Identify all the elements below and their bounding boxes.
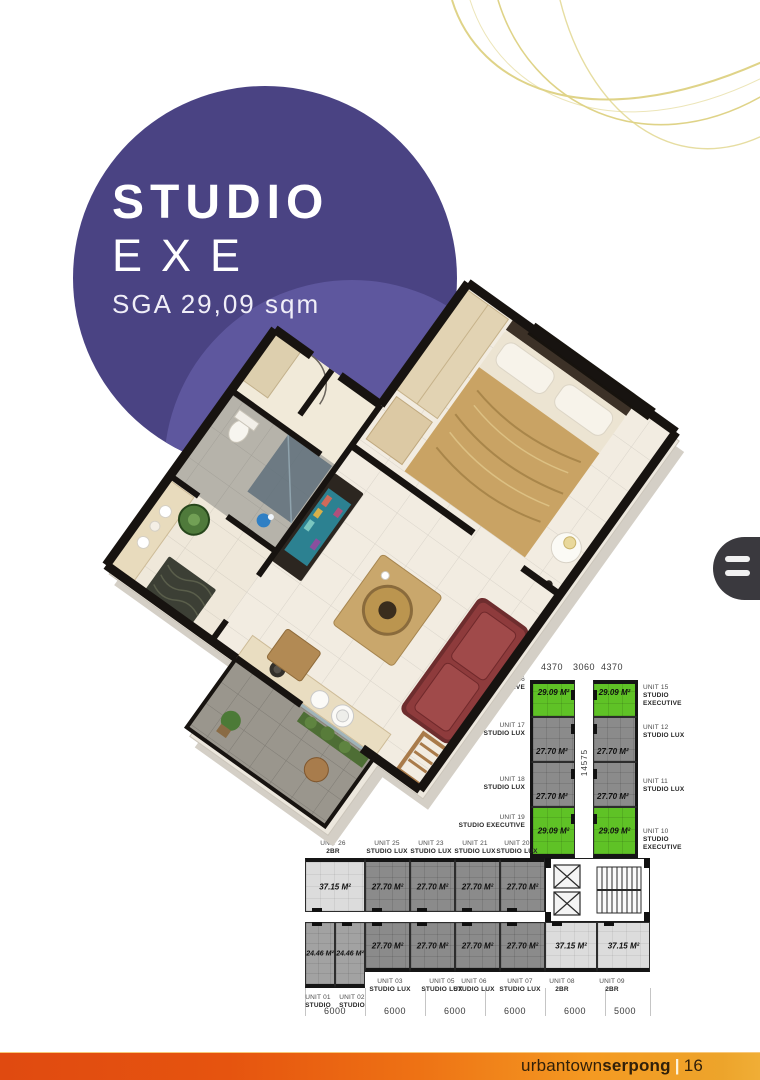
area-label: SGA 29,09 sqm xyxy=(112,287,329,321)
unit-cell: 29.09 M² xyxy=(593,680,638,717)
wardrobe xyxy=(397,290,509,418)
bathroom xyxy=(170,390,337,551)
menu-handle-icon xyxy=(725,556,750,562)
unit-cell: 29.09 M² xyxy=(530,680,575,717)
unit-area: 29.09 M² xyxy=(538,688,570,697)
dimension-label: 6000 xyxy=(564,1006,586,1016)
unit-label: UNIT 20STUDIO LUX xyxy=(491,840,543,856)
toilet xyxy=(225,416,254,446)
side-table xyxy=(545,527,587,569)
page: STUDIO EXE SGA 29,09 sqm 29.09 M²27.70 xyxy=(0,0,760,1080)
unit-area: 29.09 M² xyxy=(599,688,631,697)
unit-area: 27.70 M² xyxy=(417,941,449,950)
unit-area: 27.70 M² xyxy=(536,747,568,756)
unit-cell: 27.70 M² xyxy=(365,858,410,912)
round-wall-art xyxy=(173,499,215,541)
dimension-label: 14575 xyxy=(580,749,589,776)
dimension-label: 4370 xyxy=(541,662,563,672)
unit-cell: 27.70 M² xyxy=(530,762,575,807)
unit-label: UNIT 06STUDIO LUX xyxy=(448,978,500,994)
footer-bar: urbantownserpong|16 xyxy=(0,1052,760,1080)
page-number: 16 xyxy=(684,1056,703,1075)
unit-cell: 27.70 M² xyxy=(365,922,410,972)
unit-cell: 27.70 M² xyxy=(593,717,638,762)
dimension-tick xyxy=(425,988,426,1016)
page-title: STUDIO xyxy=(112,178,329,228)
doormat-rug xyxy=(145,556,217,624)
unit-label: UNIT 03STUDIO LUX xyxy=(364,978,416,994)
unit-area: 27.70 M² xyxy=(536,792,568,801)
dimension-tick xyxy=(485,988,486,1016)
shower xyxy=(247,435,332,523)
dimension-label: 5000 xyxy=(614,1006,636,1016)
unit-area: 27.70 M² xyxy=(597,792,629,801)
dimension-label: 6000 xyxy=(444,1006,466,1016)
unit-cell: 27.70 M² xyxy=(455,858,500,912)
dimension-label: 6000 xyxy=(504,1006,526,1016)
unit-cell: 37.15 M² xyxy=(545,922,597,972)
vanity-desk xyxy=(366,397,432,465)
unit-cell: 29.09 M² xyxy=(593,807,638,858)
floor-plate-diagram: 29.09 M²27.70 M²27.70 M²29.09 M²29.09 M²… xyxy=(293,658,703,1028)
unit-cell: 27.70 M² xyxy=(593,762,638,807)
unit-cell: 27.70 M² xyxy=(500,922,545,972)
unit-label: UNIT 262BR xyxy=(307,840,359,856)
dimension-tick xyxy=(650,988,651,1016)
footer-brand: urbantownserpong|16 xyxy=(521,1053,703,1079)
unit-area: 27.70 M² xyxy=(417,882,449,891)
unit-label: UNIT 12STUDIO LUX xyxy=(643,724,703,740)
unit-cell: 27.70 M² xyxy=(410,858,455,912)
wall-art xyxy=(527,323,655,421)
unit-label: UNIT 17STUDIO LUX xyxy=(453,722,525,738)
stairs xyxy=(597,867,641,913)
brand-bold: serpong xyxy=(602,1056,670,1075)
unit-label: UNIT 10STUDIO EXECUTIVE xyxy=(643,828,703,851)
swirl-arcs xyxy=(452,0,760,149)
dimension-tick xyxy=(365,988,366,1016)
unit-area: 27.70 M² xyxy=(597,747,629,756)
unit-area: 37.15 M² xyxy=(608,941,640,950)
dimension-label: 6000 xyxy=(324,1006,346,1016)
menu-handle-icon xyxy=(725,570,750,576)
unit-area: 24.46 M² xyxy=(306,950,334,957)
table-lamp xyxy=(561,534,578,551)
unit-cell: 27.70 M² xyxy=(500,858,545,912)
coffee-table xyxy=(332,554,442,667)
side-menu-tab[interactable] xyxy=(713,537,760,600)
unit-label: UNIT 18STUDIO LUX xyxy=(453,776,525,792)
unit-label: UNIT 19STUDIO EXECUTIVE xyxy=(453,814,525,830)
unit-area: 29.09 M² xyxy=(538,827,570,836)
unit-label: UNIT 16STUDIO EXECUTIVE xyxy=(453,676,525,692)
unit-area: 29.09 M² xyxy=(599,827,631,836)
bucket xyxy=(254,511,274,531)
dimension-tick xyxy=(605,988,606,1016)
dimension-tick xyxy=(545,988,546,1016)
page-subtitle: EXE xyxy=(112,228,329,284)
unit-label: UNIT 15STUDIO EXECUTIVE xyxy=(643,684,703,707)
unit-label: UNIT 092BR xyxy=(586,978,638,994)
unit-area: 27.70 M² xyxy=(462,941,494,950)
unit-area: 24.46 M² xyxy=(336,950,364,957)
unit-cell: 27.70 M² xyxy=(530,717,575,762)
unit-cell: 27.70 M² xyxy=(455,922,500,972)
unit-area: 27.70 M² xyxy=(372,882,404,891)
unit-cell: 24.46 M² xyxy=(335,922,365,988)
unit-cell: 37.15 M² xyxy=(305,858,365,912)
unit-cell: 24.46 M² xyxy=(305,922,335,988)
unit-area: 27.70 M² xyxy=(507,941,539,950)
plant xyxy=(217,707,245,735)
unit-cell: 27.70 M² xyxy=(410,922,455,972)
service-core xyxy=(545,858,650,922)
dimension-tick xyxy=(305,988,306,1016)
unit-area: 37.15 M² xyxy=(555,941,587,950)
tv-console xyxy=(272,473,364,582)
unit-area: 27.70 M² xyxy=(507,882,539,891)
unit-area: 27.70 M² xyxy=(462,882,494,891)
foyer xyxy=(231,329,380,466)
unit-area: 37.15 M² xyxy=(319,882,351,891)
headboard xyxy=(506,320,633,416)
unit-area: 27.70 M² xyxy=(372,941,404,950)
unit-cell: 37.15 M² xyxy=(597,922,650,972)
footer-separator: | xyxy=(671,1056,684,1075)
unit-label: UNIT 082BR xyxy=(536,978,588,994)
dimension-label: 4370 xyxy=(601,662,623,672)
bed xyxy=(405,330,627,558)
hero-text-block: STUDIO EXE SGA 29,09 sqm xyxy=(112,178,329,321)
entry-door-arc xyxy=(291,355,340,404)
dimension-label: 3060 xyxy=(573,662,595,672)
brand-regular: urbantown xyxy=(521,1056,602,1075)
unit-label: UNIT 11STUDIO LUX xyxy=(643,778,703,794)
dimension-label: 6000 xyxy=(384,1006,406,1016)
blanket xyxy=(405,367,600,557)
bedroom xyxy=(354,280,675,593)
